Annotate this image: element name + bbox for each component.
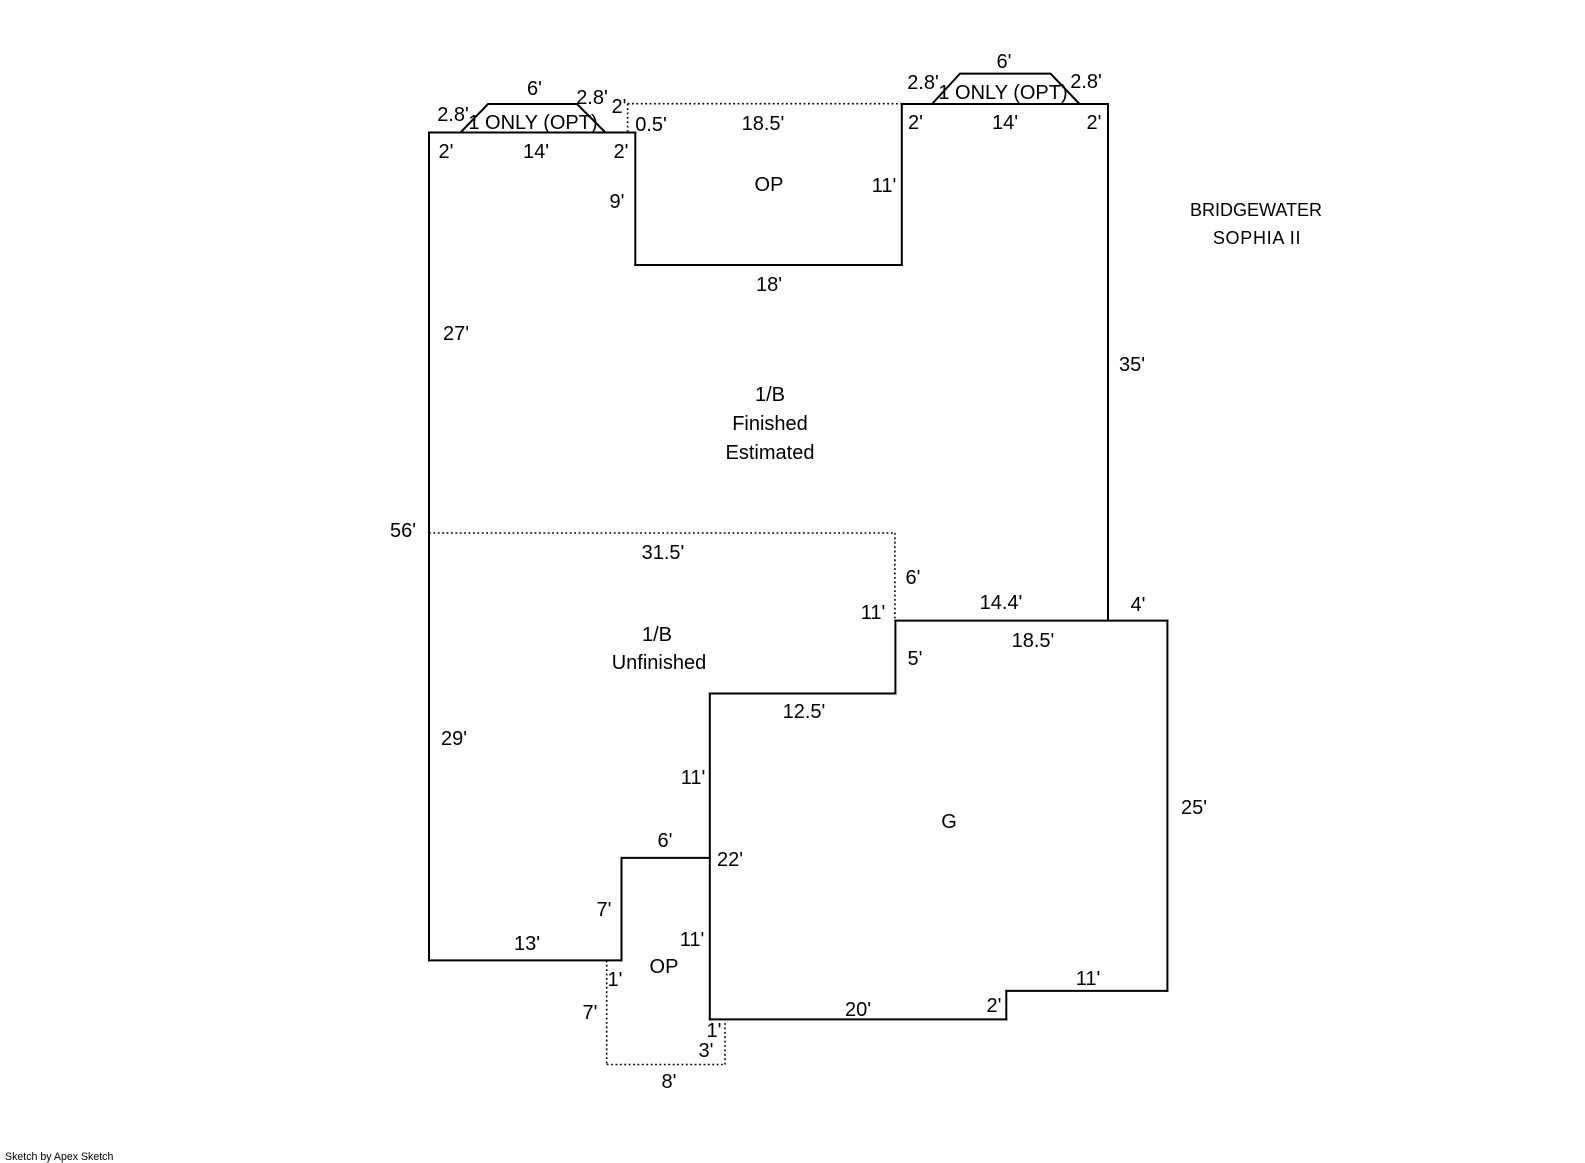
- svg-text:14.4': 14.4': [980, 592, 1023, 614]
- svg-text:31.5': 31.5': [642, 542, 685, 564]
- svg-text:1 ONLY (OPT): 1 ONLY (OPT): [938, 82, 1067, 104]
- svg-text:14': 14': [992, 112, 1018, 134]
- svg-text:BRIDGEWATER: BRIDGEWATER: [1190, 200, 1322, 220]
- svg-text:35': 35': [1119, 354, 1145, 376]
- svg-text:22': 22': [717, 849, 743, 871]
- svg-text:1/B: 1/B: [642, 624, 672, 646]
- svg-text:3': 3': [699, 1040, 714, 1062]
- svg-text:SOPHIA II: SOPHIA II: [1213, 228, 1301, 248]
- svg-text:18': 18': [756, 274, 782, 296]
- svg-text:2': 2': [439, 141, 454, 163]
- svg-text:18.5': 18.5': [742, 113, 785, 135]
- svg-text:6': 6': [527, 78, 542, 100]
- svg-text:G: G: [941, 811, 957, 833]
- svg-text:13': 13': [514, 933, 540, 955]
- svg-text:2': 2': [614, 141, 629, 163]
- svg-text:7': 7': [583, 1002, 598, 1024]
- svg-text:18.5': 18.5': [1012, 630, 1055, 652]
- svg-text:OP: OP: [755, 174, 784, 196]
- svg-text:56': 56': [390, 520, 416, 542]
- svg-text:2.8': 2.8': [907, 72, 939, 94]
- svg-text:11': 11': [861, 602, 886, 624]
- svg-text:11': 11': [1076, 968, 1101, 990]
- svg-text:1': 1': [707, 1020, 722, 1042]
- svg-text:2.8': 2.8': [576, 87, 608, 109]
- svg-text:1 ONLY (OPT): 1 ONLY (OPT): [468, 112, 597, 134]
- svg-text:14': 14': [523, 141, 549, 163]
- svg-text:Sketch by Apex Sketch: Sketch by Apex Sketch: [5, 1151, 113, 1163]
- svg-text:20': 20': [845, 999, 871, 1021]
- svg-text:8': 8': [662, 1071, 677, 1093]
- svg-text:4': 4': [1131, 594, 1146, 616]
- svg-text:27': 27': [443, 323, 469, 345]
- svg-text:0.5': 0.5': [635, 114, 667, 136]
- svg-text:6': 6': [997, 51, 1012, 73]
- svg-text:2.8': 2.8': [437, 104, 469, 126]
- svg-text:6': 6': [658, 830, 673, 852]
- svg-text:Estimated: Estimated: [726, 442, 815, 464]
- svg-text:25': 25': [1181, 797, 1207, 819]
- svg-text:11': 11': [872, 175, 897, 197]
- svg-text:6': 6': [906, 567, 921, 589]
- svg-text:2.8': 2.8': [1070, 71, 1102, 93]
- svg-text:2': 2': [612, 96, 627, 118]
- svg-text:1': 1': [608, 969, 623, 991]
- svg-text:9': 9': [610, 191, 625, 213]
- svg-text:Unfinished: Unfinished: [612, 652, 707, 674]
- svg-text:1/B: 1/B: [755, 384, 785, 406]
- svg-text:2': 2': [1087, 112, 1102, 134]
- svg-text:5': 5': [908, 648, 923, 670]
- svg-text:2': 2': [908, 112, 923, 134]
- svg-text:12.5': 12.5': [783, 701, 826, 723]
- svg-text:29': 29': [441, 728, 467, 750]
- svg-text:11': 11': [680, 929, 705, 951]
- svg-text:OP: OP: [650, 956, 679, 978]
- svg-text:Finished: Finished: [732, 413, 808, 435]
- svg-text:7': 7': [597, 899, 612, 921]
- svg-text:2': 2': [987, 995, 1002, 1017]
- svg-text:11': 11': [681, 767, 706, 789]
